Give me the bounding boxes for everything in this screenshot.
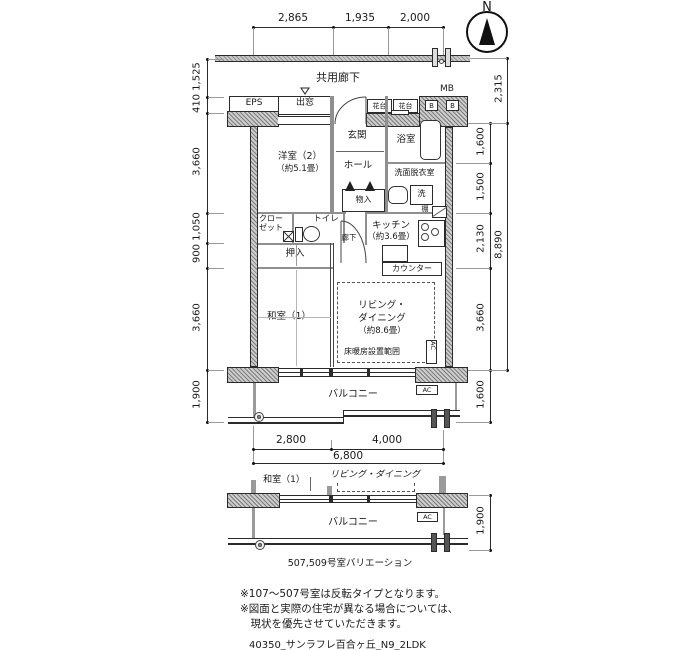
label-bay-window: 出窓 [296,98,314,108]
variation-label-living: リビング・ダイニング [330,471,420,481]
dim-bottom-total: 6,800 [326,450,370,462]
label-floor-heating: 床暖房設置範囲 [340,348,404,357]
label-entrance: 玄関 [340,130,374,141]
wall-bottom-right-pier [415,367,468,383]
tick [252,462,255,465]
dim-left-6: 3,660 [192,296,203,340]
bay-window-box: 出窓 [278,96,332,115]
sliding-door-washitsu [330,243,334,367]
window-mullion [329,495,333,503]
burner [421,223,429,231]
ext-line [208,370,224,371]
label-kitchen: キッチン [368,220,414,231]
burner [421,233,429,241]
wall-bath-washroom [387,162,445,164]
ext-line [208,213,224,214]
tick [252,448,255,451]
bath-window [391,110,409,115]
label-shelf: 棚 [419,206,431,213]
variation-leader [310,477,311,491]
label-hall: ホール [336,160,380,171]
dim-right-1: 1,600 [476,120,487,164]
variation-dim-right: 1,900 [476,499,487,543]
wall-left [250,126,258,367]
toilet-bowl [303,226,320,242]
dim-top-1: 2,865 [271,12,315,24]
meter-b-2: B [446,100,459,111]
dim-line-right-inner [490,123,491,422]
ext-line [470,58,507,59]
washbasin [388,186,408,204]
meter-b-1: B [425,100,438,111]
tick [442,462,445,465]
eps-box: EPS [229,96,279,112]
ext-line [456,213,490,214]
shelf-box [432,206,447,218]
label-closet-2: ゼット [257,224,285,233]
variation-wall-left [252,508,255,539]
variation-post [444,533,450,552]
label-toilet: トイレ [311,215,341,224]
balcony-post [431,409,437,428]
window-mullion [367,495,370,503]
corridor-post [432,48,438,67]
tatami-line-h [258,317,331,318]
note-line-2: ※図面と実際の住宅が異なる場合については、 [240,601,458,616]
label-counter: カウンター [392,264,432,273]
ext-line [388,28,389,55]
label-washer: 洗 [418,189,426,198]
label-western-room-size: （約5.1畳） [269,164,331,174]
wall-oshiire-bottom [258,267,333,269]
ext-line [208,97,224,98]
note-line-3: 現状を優先させていただきます。 [240,616,407,631]
variation-label-japanese-room: 和室（1） [258,476,310,486]
variation-ac-unit: AC [417,512,438,522]
ext-line [456,422,490,423]
label-washroom: 洗面脱衣室 [386,169,443,178]
dim-top-3: 2,000 [393,12,437,24]
ext-line [208,268,224,269]
dim-bottom-2: 4,000 [365,434,409,446]
variation-label-ac: AC [423,513,432,521]
ext-line [208,422,224,423]
ext-line [443,430,444,463]
window-mullion [329,368,333,377]
closet-fixture [283,231,294,242]
wall-right [445,127,453,367]
variation-dim-line [490,495,491,550]
label-meter-b-1: B [429,102,434,110]
dim-right-outer-total: 8,890 [494,223,505,267]
dim-left-5: 900 [192,232,203,276]
flower-stand-1: 花台 [367,99,392,113]
dim-right-5: 1,600 [476,373,487,417]
balcony-wall-right [455,383,457,410]
variation-post [431,533,437,552]
ext-line [208,59,224,60]
window-mullion [300,368,303,377]
file-code: 40350_サンラフレ百合ヶ丘_N9_2LDK [249,636,426,650]
variation-pier-left [227,493,280,508]
ext-line [208,243,224,244]
label-corridor-inner: 廊下 [336,234,362,242]
balcony-post [444,409,450,428]
floor-plan-page: N 2,865 1,935 2,000 共用廊下 1,525 410 3,660… [0,0,700,650]
variation-wall-stub [439,476,446,493]
burner [431,228,439,236]
variation-wall-stub [251,480,256,493]
dim-line-bottom-2 [253,463,443,464]
dim-left-2: 410 [192,82,203,126]
variation-label-balcony: バルコニー [319,517,387,529]
dim-right-2: 1,500 [476,165,487,209]
label-storage: 物入 [356,195,372,204]
corridor-post [445,48,451,67]
wall-top-strip [366,113,420,127]
genkan-step-line [336,151,384,152]
dim-line-right-outer [507,58,508,370]
label-ac-living: AC [427,341,438,350]
ext-line [456,268,490,269]
ac-unit-living: AC [426,340,437,364]
ext-line [253,426,254,463]
label-meter-b-2: B [450,102,455,110]
label-oshiire: 押入 [279,248,311,259]
bathtub [420,120,441,160]
variation-window-mid [280,499,416,500]
label-corridor: 共用廊下 [298,71,378,84]
label-flower-stand-2: 花台 [399,102,413,110]
dim-left-3: 3,660 [192,140,203,184]
label-eps: EPS [246,98,263,108]
oshiire-divider [296,245,297,266]
ext-line [208,113,224,114]
dim-top-2: 1,935 [338,12,382,24]
variation-wall-right [443,508,445,535]
tick [442,448,445,451]
dim-right-4: 3,660 [476,296,487,340]
label-ac-balcony: AC [423,386,432,394]
north-arrow-icon [479,18,495,45]
counter-box: カウンター [382,262,442,276]
ext-line [469,550,490,551]
bay-window-sill [278,116,332,125]
balcony-edge-left [228,417,344,424]
balcony-edge-step [343,410,344,424]
ext-line [443,28,444,55]
dim-right-outer-top: 2,315 [494,67,505,111]
window-mullion [367,368,370,377]
wall-bottom-left-pier [227,367,279,383]
label-balcony: バルコニー [320,389,386,401]
variation-wall-stub [327,486,332,495]
ext-line [333,28,334,55]
variation-caption: 507,509号室バリエーション [272,558,428,569]
variation-pier-right [416,493,468,508]
dim-bottom-1: 2,800 [269,434,313,446]
kitchen-sink [382,245,408,262]
joint-mark [439,59,444,64]
note-line-1: ※107〜507号室は反転タイプとなります。 [240,586,445,601]
tatami-line-v [296,270,297,366]
label-western-room: 洋室（2） [269,151,331,162]
toilet-tank [295,227,303,242]
dim-right-3: 2,130 [476,217,487,261]
label-kitchen-size: （約3.6畳） [366,232,416,242]
variation-living-bracket [337,483,415,492]
dim-left-7: 1,900 [192,373,203,417]
ext-line [253,28,254,55]
wall-top-left-pier [227,111,279,127]
balcony-edge-right [344,410,460,417]
variation-drain-center [258,543,262,547]
dim-line-top [253,27,443,28]
washer-box: 洗 [410,185,433,205]
label-meter-box: MB [436,85,458,95]
drain-center [257,415,261,419]
label-bathroom: 浴室 [390,134,422,145]
ac-unit-balcony: AC [416,385,438,395]
storage-box: 物入 [342,189,385,212]
ext-line [469,495,490,496]
